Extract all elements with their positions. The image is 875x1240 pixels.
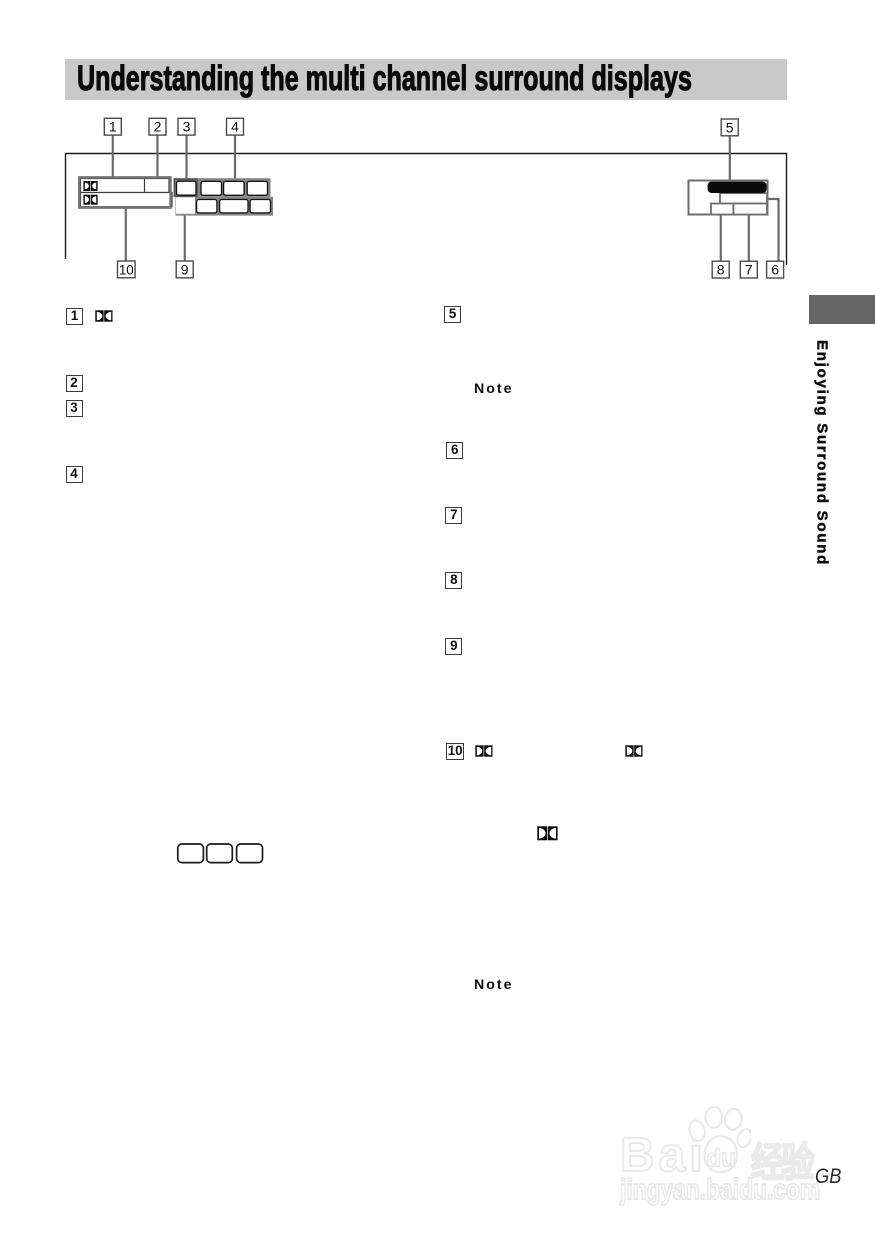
svg-text:5: 5	[726, 119, 734, 135]
svg-text:2: 2	[154, 119, 162, 135]
svg-text:1: 1	[109, 119, 117, 135]
svg-text:10: 10	[119, 262, 134, 277]
svg-text:7: 7	[745, 262, 753, 278]
svg-text:du: du	[706, 1145, 735, 1172]
svg-text:6: 6	[771, 262, 779, 278]
svg-text:9: 9	[181, 261, 189, 277]
svg-text:4: 4	[231, 119, 239, 135]
svg-text:3: 3	[183, 119, 191, 135]
svg-text:8: 8	[717, 262, 725, 278]
